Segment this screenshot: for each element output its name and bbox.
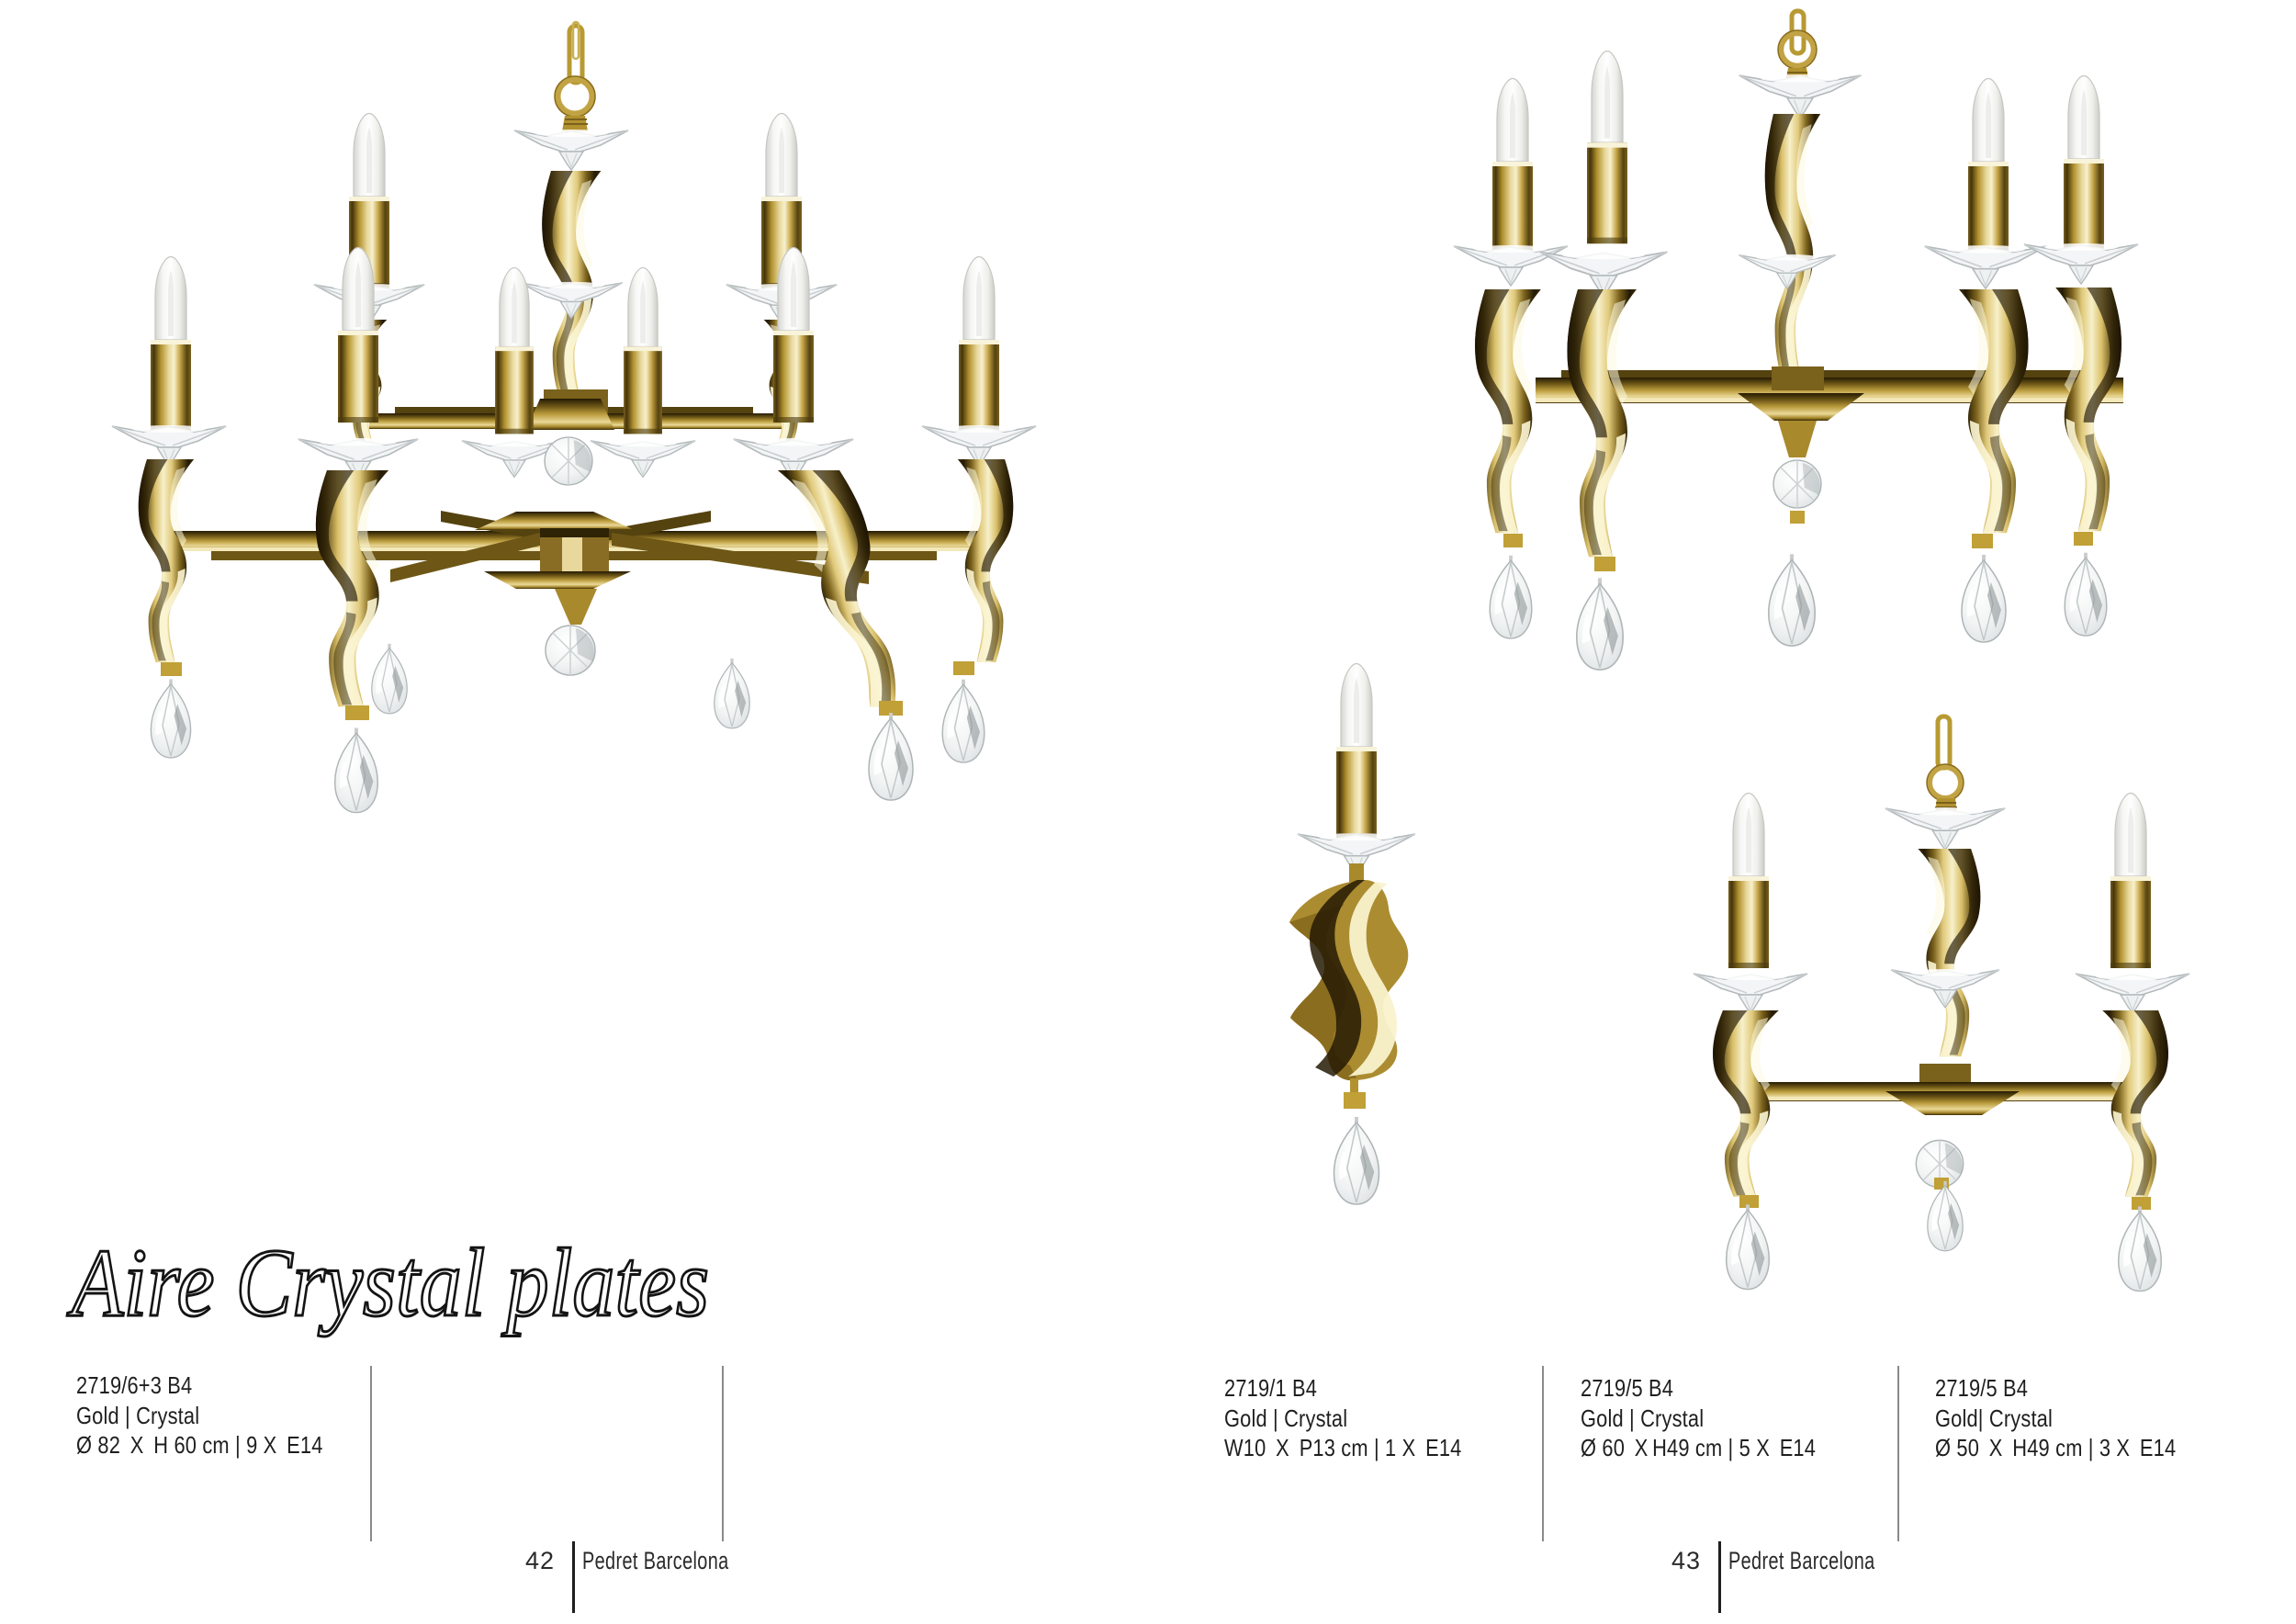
svg-text:Aire Crystal plates: Aire Crystal plates	[67, 1229, 709, 1336]
